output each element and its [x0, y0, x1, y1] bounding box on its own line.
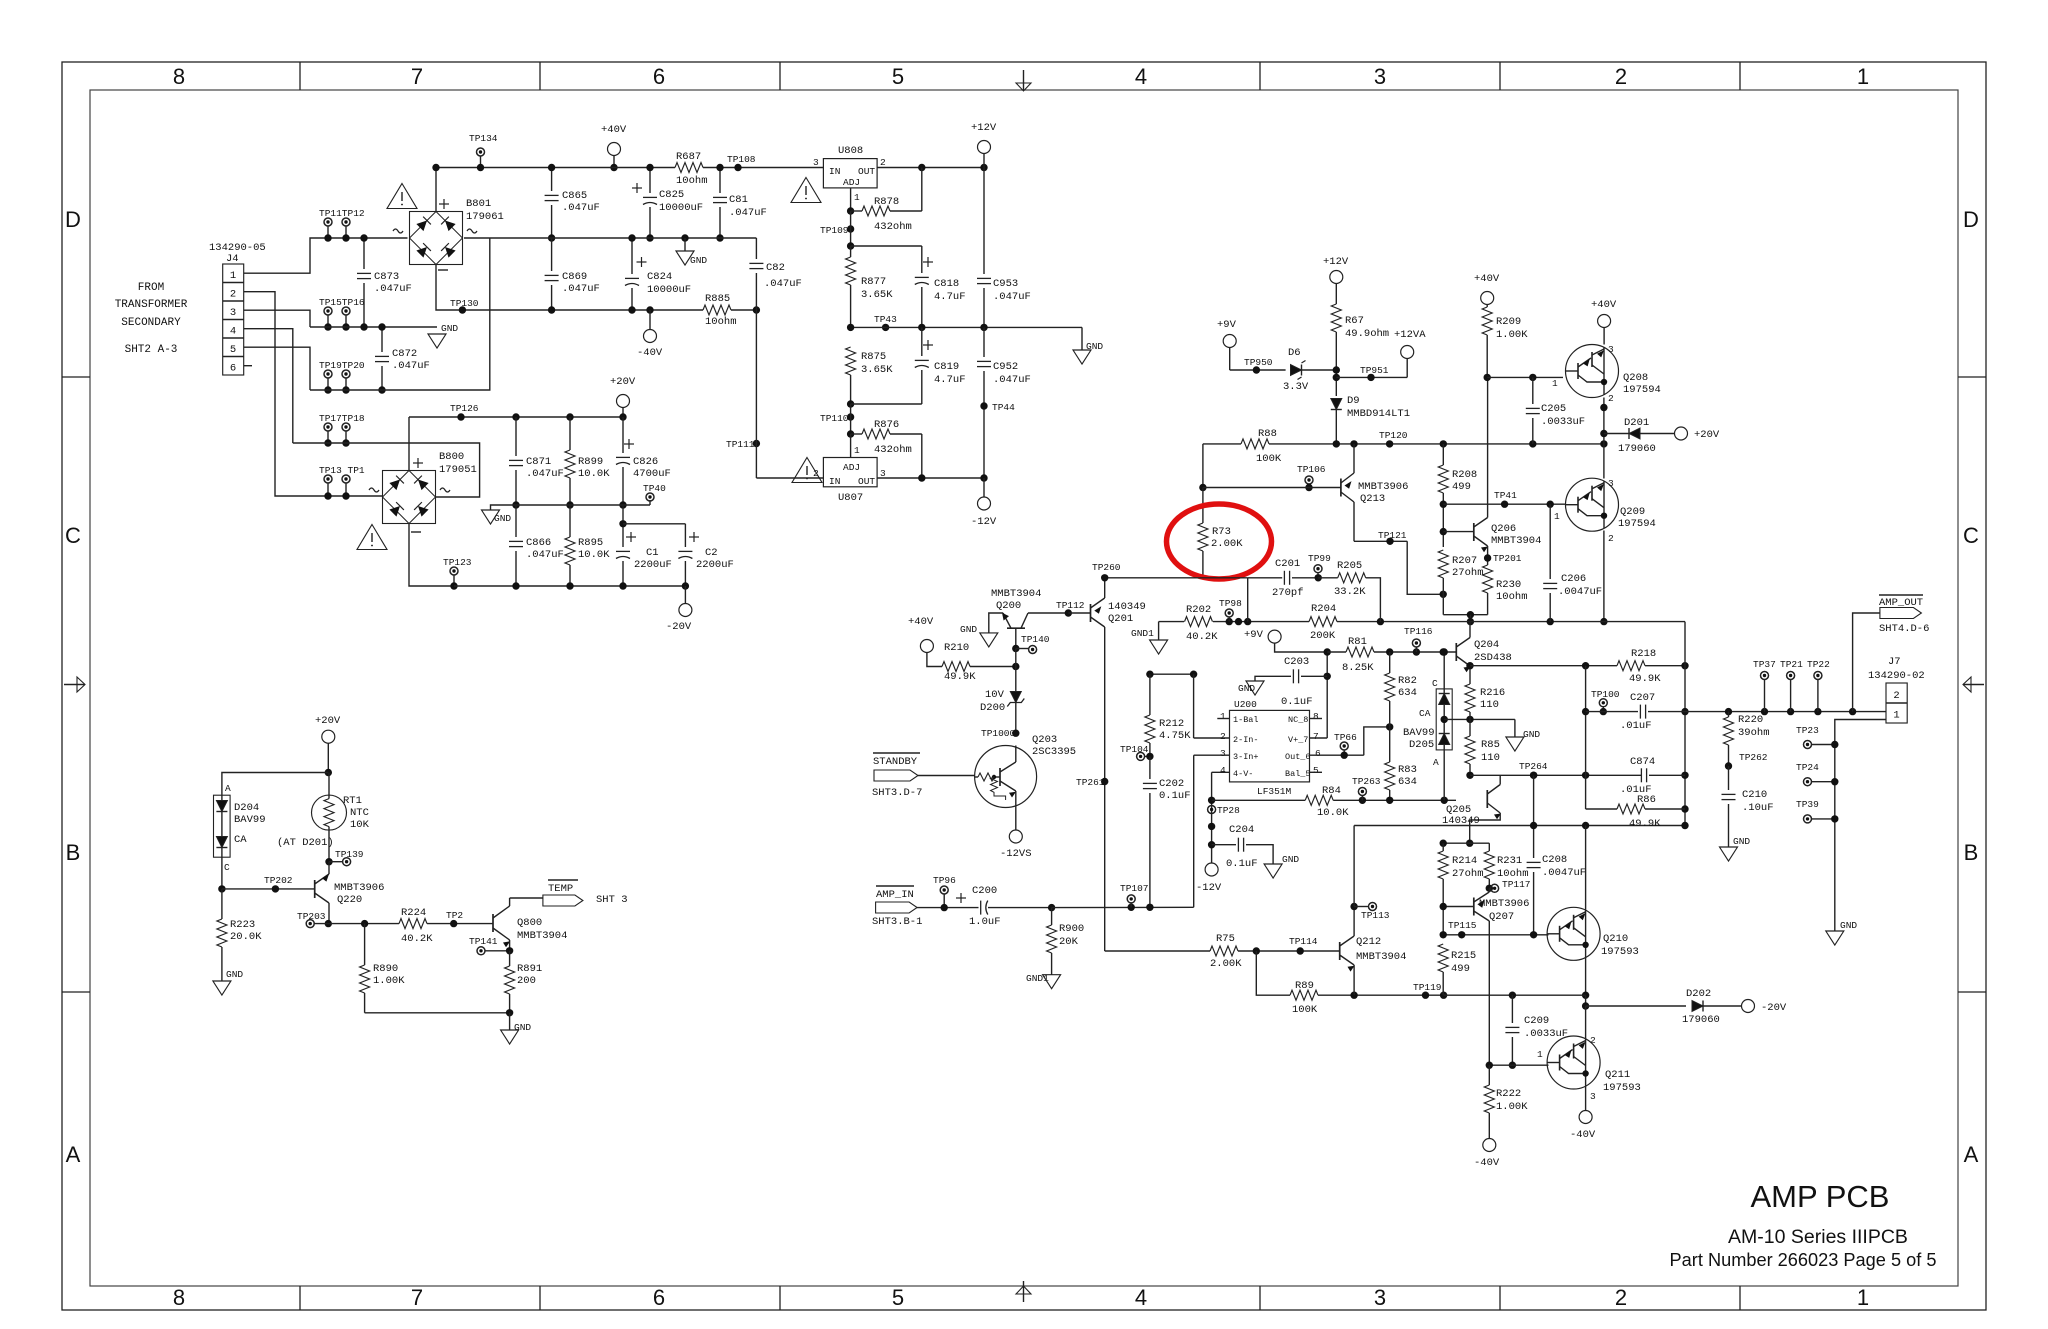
svg-text:7: 7 — [411, 64, 423, 89]
svg-text:-12V: -12V — [971, 516, 997, 528]
svg-text:4: 4 — [1135, 64, 1147, 89]
svg-text:197594: 197594 — [1623, 384, 1661, 396]
svg-text:5: 5 — [1313, 765, 1319, 776]
svg-text:5: 5 — [892, 1285, 904, 1310]
svg-text:GND: GND — [494, 513, 511, 524]
svg-text:B: B — [66, 840, 81, 865]
svg-text:R216: R216 — [1480, 687, 1505, 699]
svg-text:+20V: +20V — [1694, 429, 1720, 441]
svg-text:TP141: TP141 — [469, 936, 498, 947]
svg-text:3-In+: 3-In+ — [1233, 752, 1259, 762]
svg-text:Q208: Q208 — [1623, 372, 1648, 384]
svg-text:3.65K: 3.65K — [861, 364, 893, 376]
svg-text:5: 5 — [892, 64, 904, 89]
svg-text:TP40: TP40 — [643, 483, 666, 494]
svg-text:R81: R81 — [1348, 636, 1367, 648]
svg-text:1: 1 — [1893, 710, 1899, 722]
svg-text:40.2K: 40.2K — [1186, 631, 1218, 643]
svg-text:.047uF: .047uF — [374, 283, 412, 295]
svg-text:.01uF: .01uF — [1620, 720, 1652, 732]
svg-text:10.0K: 10.0K — [578, 549, 610, 561]
svg-text:4.7uF: 4.7uF — [934, 374, 966, 386]
svg-text:TP39: TP39 — [1796, 799, 1819, 810]
svg-text:TP96: TP96 — [933, 875, 956, 886]
svg-text:TP201: TP201 — [1493, 553, 1522, 564]
svg-text:U808: U808 — [838, 145, 863, 157]
svg-text:J4: J4 — [226, 253, 239, 265]
svg-text:GND: GND — [1840, 920, 1857, 931]
svg-text:C202: C202 — [1159, 778, 1184, 790]
svg-text:179060: 179060 — [1682, 1014, 1720, 1026]
svg-text:4.75K: 4.75K — [1159, 730, 1191, 742]
svg-text:R223: R223 — [230, 919, 255, 931]
svg-text:40.2K: 40.2K — [401, 933, 433, 945]
svg-text:C1: C1 — [646, 547, 659, 559]
svg-text:10K: 10K — [350, 819, 370, 831]
svg-text:C824: C824 — [647, 271, 672, 283]
svg-text:.047uF: .047uF — [526, 468, 564, 480]
svg-text:+20V: +20V — [315, 715, 341, 727]
svg-text:TP202: TP202 — [264, 875, 293, 886]
svg-text:TP106: TP106 — [1297, 464, 1326, 475]
svg-text:+12VA: +12VA — [1394, 329, 1426, 341]
svg-text:499: 499 — [1451, 963, 1470, 975]
svg-text:+9V: +9V — [1244, 629, 1264, 641]
svg-text:2: 2 — [1608, 393, 1614, 404]
svg-text:100K: 100K — [1292, 1004, 1318, 1016]
svg-text:10000uF: 10000uF — [647, 284, 691, 296]
svg-text:Out_6: Out_6 — [1285, 752, 1311, 762]
svg-text:197593: 197593 — [1603, 1082, 1641, 1094]
svg-text:1: 1 — [230, 270, 236, 282]
svg-text:C952: C952 — [993, 361, 1018, 373]
svg-text:49.9K: 49.9K — [944, 671, 976, 683]
svg-text:SHT3.D-7: SHT3.D-7 — [872, 787, 922, 799]
svg-text:TP110: TP110 — [820, 413, 849, 424]
svg-text:Q200: Q200 — [996, 600, 1021, 612]
svg-text:4: 4 — [1135, 1285, 1147, 1310]
svg-text:179061: 179061 — [466, 211, 504, 223]
svg-text:Q204: Q204 — [1474, 639, 1499, 651]
svg-text:OUT: OUT — [858, 476, 875, 487]
svg-text:-20V: -20V — [1761, 1002, 1787, 1014]
svg-text:10.0K: 10.0K — [1317, 807, 1349, 819]
svg-text:B: B — [1964, 840, 1979, 865]
svg-text:R202: R202 — [1186, 604, 1211, 616]
svg-text:TP114: TP114 — [1289, 936, 1318, 947]
svg-text:B800: B800 — [439, 451, 464, 463]
svg-text:.047uF: .047uF — [764, 278, 802, 290]
svg-text:MMBT3904: MMBT3904 — [517, 930, 567, 942]
svg-text:TP109: TP109 — [820, 225, 849, 236]
svg-text:3: 3 — [1590, 1091, 1596, 1102]
svg-text:R885: R885 — [705, 293, 730, 305]
svg-text:.047uF: .047uF — [562, 283, 600, 295]
svg-text:+40V: +40V — [1591, 299, 1617, 311]
svg-text:Q211: Q211 — [1605, 1069, 1630, 1081]
svg-text:SECONDARY: SECONDARY — [121, 317, 181, 329]
svg-text:1.00K: 1.00K — [1496, 1101, 1528, 1113]
svg-text:C819: C819 — [934, 361, 959, 373]
svg-text:C205: C205 — [1541, 403, 1566, 415]
svg-text:TP98: TP98 — [1219, 598, 1242, 609]
svg-text:D6: D6 — [1288, 347, 1301, 359]
svg-text:2: 2 — [1615, 1285, 1627, 1310]
svg-text:C818: C818 — [934, 278, 959, 290]
svg-text:TP104: TP104 — [1120, 744, 1149, 755]
svg-text:6: 6 — [1315, 748, 1321, 759]
svg-text:1: 1 — [1857, 64, 1869, 89]
svg-text:Part Number 266023 Page 5 of 5: Part Number 266023 Page 5 of 5 — [1670, 1250, 1937, 1270]
svg-text:10000uF: 10000uF — [659, 202, 703, 214]
svg-text:STANDBY: STANDBY — [873, 756, 918, 768]
svg-text:2: 2 — [1590, 1035, 1596, 1046]
svg-text:TP126: TP126 — [450, 403, 479, 414]
svg-text:2SC3395: 2SC3395 — [1032, 746, 1076, 758]
svg-text:C873: C873 — [374, 271, 399, 283]
svg-text:8: 8 — [173, 1285, 185, 1310]
svg-text:TP260: TP260 — [1092, 562, 1121, 573]
svg-text:GND: GND — [1733, 836, 1750, 847]
svg-text:C874: C874 — [1630, 756, 1655, 768]
svg-text:1: 1 — [1552, 378, 1558, 389]
svg-text:R212: R212 — [1159, 718, 1184, 730]
svg-text:3: 3 — [1608, 478, 1614, 489]
svg-text:TP116: TP116 — [1404, 626, 1433, 637]
svg-text:C81: C81 — [729, 194, 748, 206]
svg-text:J7: J7 — [1888, 656, 1901, 668]
svg-text:R84: R84 — [1322, 785, 1341, 797]
svg-text:R209: R209 — [1496, 316, 1521, 328]
svg-text:0.1uF: 0.1uF — [1281, 696, 1313, 708]
svg-text:R205: R205 — [1337, 560, 1362, 572]
svg-text:TP111: TP111 — [726, 439, 755, 450]
svg-text:432ohm: 432ohm — [874, 444, 912, 456]
svg-text:TP43: TP43 — [874, 314, 897, 325]
svg-text:-40V: -40V — [1570, 1129, 1596, 1141]
svg-text:TP140: TP140 — [1021, 634, 1050, 645]
svg-text:Q210: Q210 — [1603, 933, 1628, 945]
svg-text:R85: R85 — [1481, 739, 1500, 751]
svg-text:C210: C210 — [1742, 789, 1767, 801]
svg-text:C203: C203 — [1284, 656, 1309, 668]
svg-text:C: C — [1963, 523, 1979, 548]
svg-text:20K: 20K — [1059, 936, 1079, 948]
svg-text:.0047uF: .0047uF — [1542, 867, 1586, 879]
svg-text:R89: R89 — [1295, 980, 1314, 992]
svg-text:27ohm: 27ohm — [1452, 868, 1484, 880]
svg-text:27ohm: 27ohm — [1452, 567, 1484, 579]
svg-text:R231: R231 — [1497, 855, 1522, 867]
svg-text:TP261: TP261 — [1076, 777, 1105, 788]
svg-text:GND: GND — [226, 969, 243, 980]
svg-text:SHT 3: SHT 3 — [596, 894, 628, 906]
svg-text:4: 4 — [1220, 765, 1226, 776]
svg-text:C206: C206 — [1561, 573, 1586, 585]
svg-text:R899: R899 — [578, 456, 603, 468]
svg-text:AM-10 Series IIIPCB: AM-10 Series IIIPCB — [1728, 1226, 1908, 1248]
svg-text:BAV99: BAV99 — [234, 814, 266, 826]
svg-text:3: 3 — [1374, 64, 1386, 89]
svg-text:SHT2 A-3: SHT2 A-3 — [125, 344, 178, 356]
svg-text:ADJ: ADJ — [843, 462, 860, 473]
svg-text:270pf: 270pf — [1272, 587, 1304, 599]
svg-text:D: D — [65, 207, 81, 232]
svg-text:+40V: +40V — [1474, 273, 1500, 285]
svg-text:.047uF: .047uF — [729, 207, 767, 219]
svg-text:TP19TP20: TP19TP20 — [319, 360, 365, 371]
svg-text:TP117: TP117 — [1502, 879, 1531, 890]
svg-text:R210: R210 — [944, 642, 969, 654]
svg-text:6: 6 — [653, 1285, 665, 1310]
svg-text:D205: D205 — [1409, 739, 1434, 751]
svg-text:SHT3.B-1: SHT3.B-1 — [872, 916, 922, 928]
svg-text:MMBT3906: MMBT3906 — [1479, 898, 1529, 910]
svg-text:2200uF: 2200uF — [696, 559, 734, 571]
svg-text:C208: C208 — [1542, 854, 1567, 866]
svg-text:3: 3 — [1374, 1285, 1386, 1310]
svg-text:GND: GND — [514, 1022, 531, 1033]
svg-text:CA: CA — [1419, 708, 1431, 719]
svg-text:197594: 197594 — [1618, 518, 1656, 530]
svg-text:C: C — [65, 523, 81, 548]
svg-text:U807: U807 — [838, 492, 863, 504]
svg-text:TP951: TP951 — [1360, 365, 1389, 376]
svg-text:TP108: TP108 — [727, 154, 756, 165]
svg-text:+12V: +12V — [1323, 256, 1349, 268]
svg-text:-40V: -40V — [637, 347, 663, 359]
svg-text:200K: 200K — [1310, 630, 1336, 642]
svg-text:C: C — [1432, 678, 1438, 689]
svg-text:C953: C953 — [993, 278, 1018, 290]
svg-text:1-Bal: 1-Bal — [1233, 715, 1259, 725]
svg-text:100K: 100K — [1256, 453, 1282, 465]
svg-text:R88: R88 — [1258, 428, 1277, 440]
svg-text:1: 1 — [854, 192, 860, 203]
svg-text:GND: GND — [1238, 683, 1255, 694]
svg-text:C200: C200 — [972, 885, 997, 897]
svg-text:C82: C82 — [766, 262, 785, 274]
svg-text:MMBT3906: MMBT3906 — [1358, 481, 1408, 493]
svg-text:C865: C865 — [562, 190, 587, 202]
svg-text:2: 2 — [1608, 533, 1614, 544]
svg-text:8: 8 — [173, 64, 185, 89]
svg-text:R220: R220 — [1738, 714, 1763, 726]
svg-text:140349: 140349 — [1108, 601, 1146, 613]
svg-text:GND1: GND1 — [1131, 628, 1154, 639]
svg-text:.0033uF: .0033uF — [1541, 416, 1585, 428]
svg-text:R876: R876 — [874, 419, 899, 431]
svg-text:TP100: TP100 — [1591, 689, 1620, 700]
svg-text:(AT D201): (AT D201) — [277, 837, 334, 849]
svg-text:3: 3 — [1220, 748, 1226, 759]
svg-text:49.9K: 49.9K — [1629, 818, 1661, 830]
svg-text:Q800: Q800 — [517, 917, 542, 929]
svg-text:.047uF: .047uF — [993, 374, 1031, 386]
svg-text:R877: R877 — [861, 276, 886, 288]
svg-text:TRANSFORMER: TRANSFORMER — [115, 299, 188, 311]
svg-text:.10uF: .10uF — [1742, 802, 1774, 814]
svg-text:TP1000: TP1000 — [981, 728, 1016, 739]
svg-text:D201: D201 — [1624, 417, 1649, 429]
svg-text:C866: C866 — [526, 537, 551, 549]
svg-text:R215: R215 — [1451, 950, 1476, 962]
svg-text:MMBT3904: MMBT3904 — [991, 588, 1041, 600]
svg-text:U200: U200 — [1234, 699, 1257, 710]
svg-text:TP112: TP112 — [1056, 600, 1085, 611]
svg-text:+40V: +40V — [601, 124, 627, 136]
svg-text:TP21: TP21 — [1780, 659, 1803, 670]
svg-text:0.1uF: 0.1uF — [1159, 790, 1191, 802]
svg-text:+9V: +9V — [1217, 319, 1237, 331]
svg-text:Q209: Q209 — [1620, 506, 1645, 518]
svg-text:4: 4 — [230, 326, 236, 338]
svg-text:R895: R895 — [578, 537, 603, 549]
svg-text:TP37: TP37 — [1753, 659, 1776, 670]
svg-text:.0047uF: .0047uF — [1558, 586, 1602, 598]
svg-text:A: A — [225, 783, 231, 794]
svg-text:IN: IN — [829, 166, 840, 177]
svg-text:1.0uF: 1.0uF — [969, 916, 1001, 928]
svg-text:TP44: TP44 — [992, 402, 1015, 413]
svg-text:2: 2 — [1893, 690, 1899, 702]
svg-text:AMP PCB: AMP PCB — [1751, 1179, 1890, 1214]
svg-text:R687: R687 — [676, 151, 701, 163]
svg-text:R207: R207 — [1452, 555, 1477, 567]
svg-text:1: 1 — [854, 445, 860, 456]
svg-text:TP123: TP123 — [443, 557, 472, 568]
svg-text:7: 7 — [411, 1285, 423, 1310]
svg-text:TP2: TP2 — [446, 910, 463, 921]
svg-text:10V: 10V — [985, 689, 1005, 701]
svg-text:0.1uF: 0.1uF — [1226, 858, 1258, 870]
svg-text:197593: 197593 — [1601, 946, 1639, 958]
svg-text:C207: C207 — [1630, 692, 1655, 704]
svg-text:TP264: TP264 — [1519, 761, 1548, 772]
svg-text:NTC: NTC — [350, 807, 369, 819]
svg-text:4700uF: 4700uF — [633, 468, 671, 480]
svg-text:D204: D204 — [234, 802, 259, 814]
svg-text:10.0K: 10.0K — [578, 468, 610, 480]
svg-text:R230: R230 — [1496, 579, 1521, 591]
svg-text:D202: D202 — [1686, 988, 1711, 1000]
svg-text:1: 1 — [1220, 711, 1226, 722]
svg-text:Q203: Q203 — [1032, 734, 1057, 746]
svg-text:R83: R83 — [1398, 764, 1417, 776]
svg-text:2SD438: 2SD438 — [1474, 652, 1512, 664]
svg-text:432ohm: 432ohm — [874, 221, 912, 233]
svg-text:R224: R224 — [401, 907, 426, 919]
svg-text:FROM: FROM — [138, 282, 164, 294]
svg-text:Q220: Q220 — [337, 894, 362, 906]
svg-text:10ohm: 10ohm — [1496, 591, 1528, 603]
svg-text:R890: R890 — [373, 963, 398, 975]
svg-text:TP23: TP23 — [1796, 725, 1819, 736]
svg-text:33.2K: 33.2K — [1334, 586, 1366, 598]
svg-text:.047uF: .047uF — [993, 291, 1031, 303]
svg-text:TP134: TP134 — [469, 133, 498, 144]
svg-text:4.7uF: 4.7uF — [934, 291, 966, 303]
svg-text:R900: R900 — [1059, 923, 1084, 935]
svg-text:2: 2 — [1615, 64, 1627, 89]
svg-text:6: 6 — [653, 64, 665, 89]
svg-text:D: D — [1963, 207, 1979, 232]
svg-text:.047uF: .047uF — [392, 360, 430, 372]
svg-text:20.0K: 20.0K — [230, 931, 262, 943]
svg-text:MMBT3906: MMBT3906 — [334, 882, 384, 894]
svg-text:2200uF: 2200uF — [634, 559, 672, 571]
svg-text:R222: R222 — [1496, 1088, 1521, 1100]
svg-text:179051: 179051 — [439, 464, 477, 476]
svg-text:R82: R82 — [1398, 675, 1417, 687]
svg-text:110: 110 — [1481, 752, 1500, 764]
svg-text:R204: R204 — [1311, 603, 1336, 615]
svg-text:A: A — [1433, 757, 1439, 768]
svg-text:TP66: TP66 — [1334, 732, 1357, 743]
svg-text:TP13 TP1: TP13 TP1 — [319, 465, 365, 476]
svg-text:-40V: -40V — [1474, 1157, 1500, 1169]
svg-text:.0033uF: .0033uF — [1524, 1028, 1568, 1040]
svg-text:GND: GND — [960, 624, 977, 635]
svg-text:C872: C872 — [392, 348, 417, 360]
svg-text:4-V-: 4-V- — [1233, 769, 1253, 779]
svg-text:MMBT3904: MMBT3904 — [1356, 951, 1406, 963]
svg-text:Bal_5: Bal_5 — [1285, 769, 1311, 779]
svg-text:499: 499 — [1452, 481, 1471, 493]
svg-text:TP22: TP22 — [1807, 659, 1830, 670]
svg-text:ADJ: ADJ — [843, 177, 860, 188]
svg-text:TP120: TP120 — [1379, 430, 1408, 441]
svg-text:3.3V: 3.3V — [1283, 381, 1309, 393]
svg-text:Q201: Q201 — [1108, 613, 1133, 625]
svg-text:GND: GND — [1282, 854, 1299, 865]
svg-text:TP17TP18: TP17TP18 — [319, 413, 365, 424]
svg-text:TP24: TP24 — [1796, 762, 1819, 773]
svg-text:R67: R67 — [1345, 315, 1364, 327]
svg-text:GND: GND — [1086, 341, 1103, 352]
svg-text:-12V: -12V — [1196, 882, 1222, 894]
svg-text:Q213: Q213 — [1360, 493, 1385, 505]
svg-text:+20V: +20V — [610, 376, 636, 388]
svg-text:1: 1 — [1554, 511, 1560, 522]
svg-text:D200: D200 — [980, 702, 1005, 714]
svg-text:Q212: Q212 — [1356, 936, 1381, 948]
svg-text:2-In-: 2-In- — [1233, 735, 1259, 745]
svg-text:C204: C204 — [1229, 824, 1254, 836]
svg-text:TP15TP16: TP15TP16 — [319, 297, 365, 308]
svg-text:V+_7: V+_7 — [1288, 735, 1308, 745]
svg-text:NC_8: NC_8 — [1288, 715, 1308, 725]
svg-text:D9: D9 — [1347, 395, 1360, 407]
svg-text:TP262: TP262 — [1739, 752, 1768, 763]
svg-text:C2: C2 — [705, 547, 718, 559]
svg-text:R73: R73 — [1212, 526, 1231, 538]
svg-text:R878: R878 — [874, 196, 899, 208]
svg-text:MMBT3904: MMBT3904 — [1491, 535, 1541, 547]
svg-text:110: 110 — [1480, 699, 1499, 711]
svg-text:1: 1 — [1537, 1049, 1543, 1060]
svg-text:179060: 179060 — [1618, 443, 1656, 455]
svg-text:TP107: TP107 — [1120, 883, 1149, 894]
svg-text:2.00K: 2.00K — [1210, 958, 1242, 970]
svg-text:BAV99: BAV99 — [1403, 727, 1435, 739]
svg-text:3: 3 — [1608, 344, 1614, 355]
svg-text:R214: R214 — [1452, 855, 1477, 867]
svg-text:GND: GND — [441, 323, 458, 334]
svg-text:AMP_IN: AMP_IN — [876, 889, 914, 901]
svg-text:3.65K: 3.65K — [861, 289, 893, 301]
svg-text:C826: C826 — [633, 456, 658, 468]
